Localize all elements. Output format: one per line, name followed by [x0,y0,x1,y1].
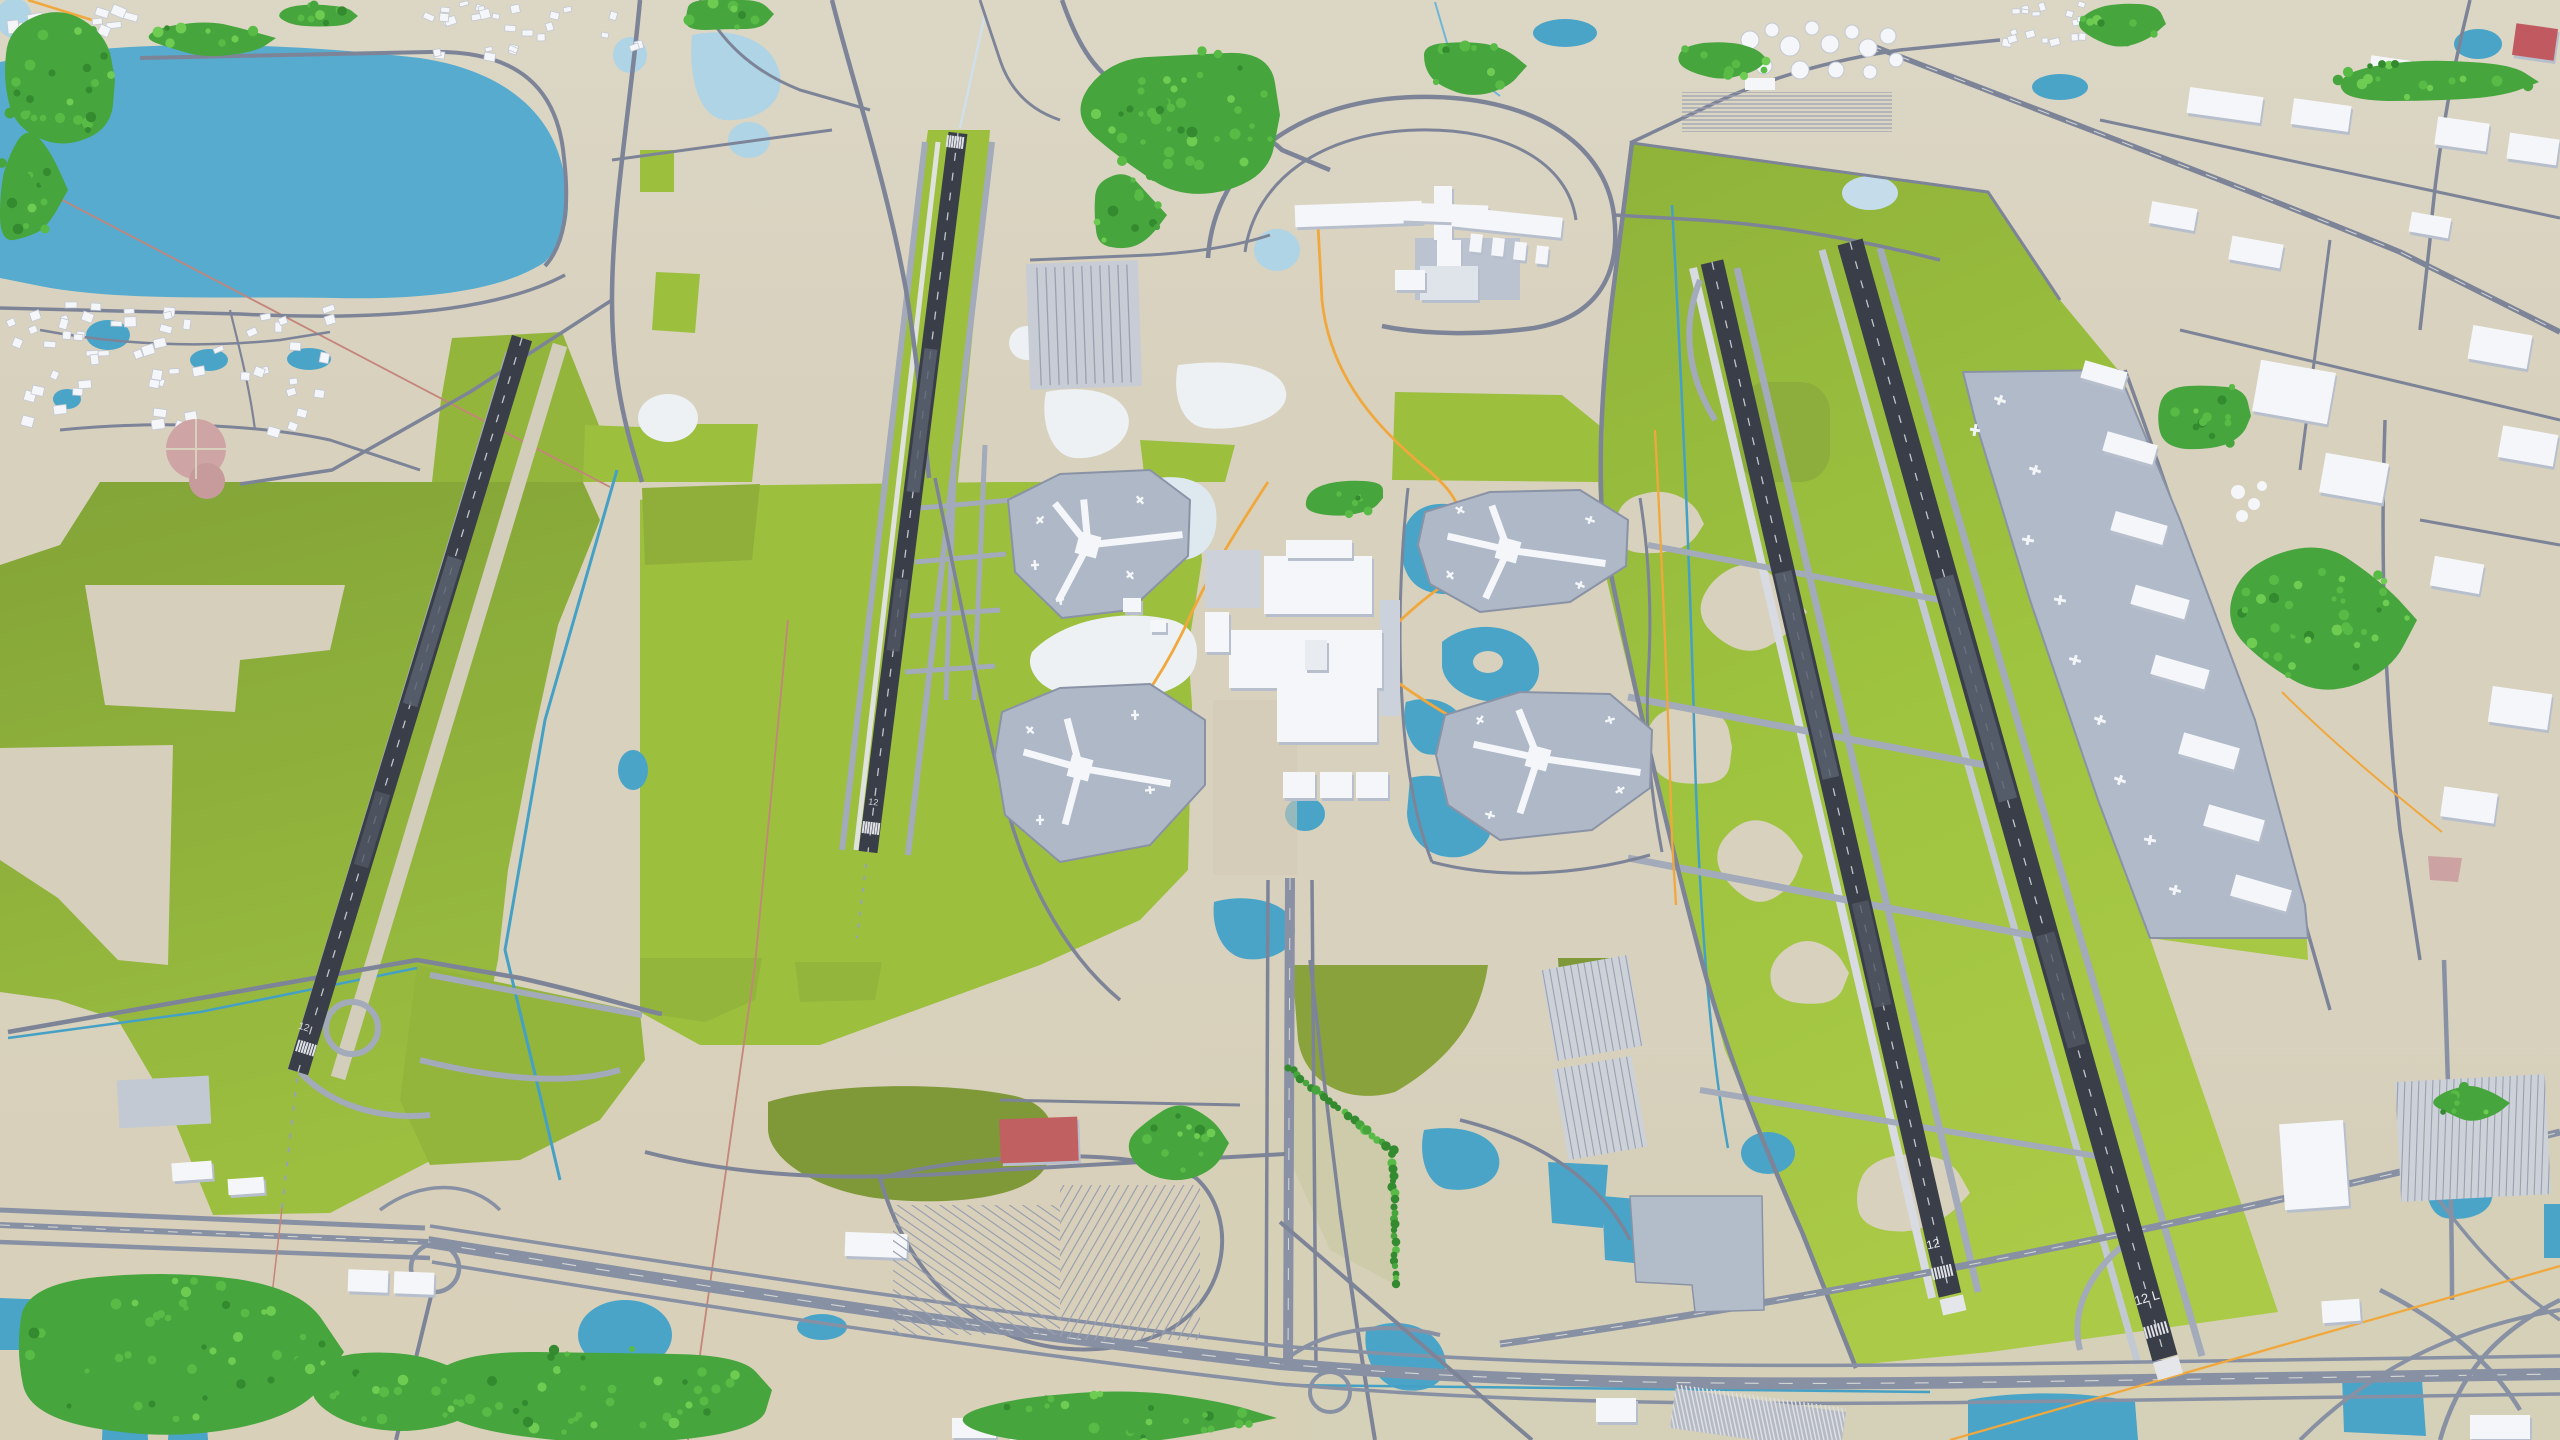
svg-text:12: 12 [868,796,879,807]
